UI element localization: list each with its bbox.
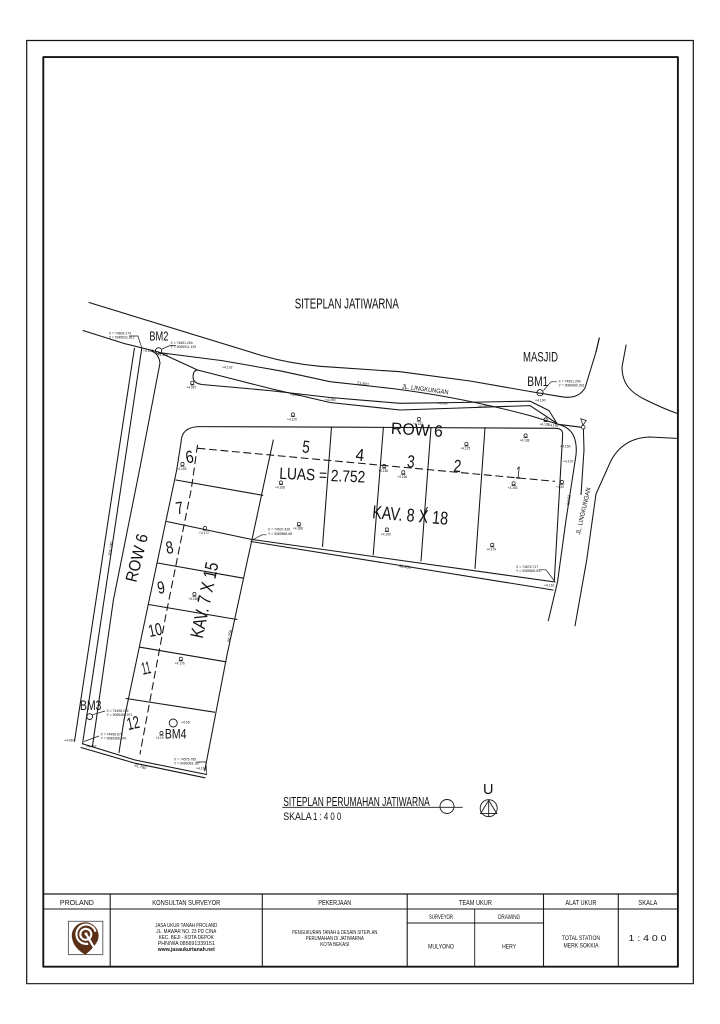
svg-text:+4.155: +4.155 bbox=[177, 467, 187, 471]
svg-text:U: U bbox=[483, 782, 493, 798]
svg-text:Y = 9089868.68: Y = 9089868.68 bbox=[268, 532, 292, 536]
svg-text:Y = 9089366.249: Y = 9089366.249 bbox=[101, 736, 127, 740]
svg-text:1: 1 bbox=[515, 462, 522, 482]
svg-text:JL. LINGKUNGAN: JL. LINGKUNGAN bbox=[401, 383, 449, 396]
svg-text:KOTA BEKASI: KOTA BEKASI bbox=[320, 942, 349, 948]
svg-text:+4.153: +4.153 bbox=[508, 486, 518, 490]
svg-text:+4.161: +4.161 bbox=[196, 767, 207, 771]
svg-text:10: 10 bbox=[146, 619, 164, 641]
svg-text:DRAWING: DRAWING bbox=[498, 915, 520, 921]
svg-text:62.02: 62.02 bbox=[565, 494, 571, 505]
svg-text:SURVEYOR: SURVEYOR bbox=[429, 915, 453, 921]
svg-text:TOTAL STATION: TOTAL STATION bbox=[562, 936, 600, 942]
svg-text:4: 4 bbox=[355, 445, 366, 466]
svg-text:45.201: 45.201 bbox=[399, 563, 413, 570]
svg-text:Y = 9089565.817: Y = 9089565.817 bbox=[516, 569, 542, 573]
svg-text:3: 3 bbox=[406, 451, 416, 472]
svg-text:1 : 4 0 0: 1 : 4 0 0 bbox=[313, 811, 341, 823]
svg-text:+4.467: +4.467 bbox=[64, 739, 75, 743]
svg-text:+4.19: +4.19 bbox=[156, 736, 164, 740]
svg-text:+4.504: +4.504 bbox=[143, 349, 154, 353]
svg-text:KONSULTAN SURVEYOR: KONSULTAN SURVEYOR bbox=[152, 900, 220, 907]
svg-text:+4.161: +4.161 bbox=[544, 584, 555, 588]
svg-text:MULYONO: MULYONO bbox=[428, 945, 454, 951]
svg-text:Y = 9089960.391: Y = 9089960.391 bbox=[559, 383, 585, 387]
svg-text:105.190: 105.190 bbox=[107, 540, 114, 556]
svg-text:+4.188: +4.188 bbox=[293, 527, 303, 531]
svg-text:+4.132: +4.132 bbox=[413, 422, 423, 426]
svg-text:+4.090: +4.090 bbox=[325, 398, 336, 402]
svg-text:+4.10: +4.10 bbox=[556, 485, 564, 489]
svg-text:+4.172: +4.172 bbox=[199, 531, 209, 535]
svg-text:+4.188: +4.188 bbox=[188, 597, 198, 601]
svg-text:+4.166: +4.166 bbox=[397, 475, 407, 479]
svg-text:www.jasaukurtanah.net: www.jasaukurtanah.net bbox=[157, 947, 215, 953]
svg-text:66.256: 66.256 bbox=[226, 629, 233, 643]
svg-text:2: 2 bbox=[453, 456, 463, 477]
svg-text:Y = 9089363.187: Y = 9089363.187 bbox=[174, 761, 200, 765]
svg-text:SKALA: SKALA bbox=[638, 900, 657, 907]
svg-text:+4.05: +4.05 bbox=[181, 721, 190, 725]
svg-text:+4.190: +4.190 bbox=[381, 532, 391, 536]
svg-text:+4.097: +4.097 bbox=[186, 386, 196, 390]
svg-text:Y = 9089465.971: Y = 9089465.971 bbox=[107, 713, 133, 717]
svg-text:LUAS = 2.752: LUAS = 2.752 bbox=[279, 465, 366, 487]
svg-text:+4.125: +4.125 bbox=[460, 447, 470, 451]
svg-text:+4.136: +4.136 bbox=[378, 469, 388, 473]
svg-text:KAV. 8 X 18: KAV. 8 X 18 bbox=[372, 501, 450, 529]
svg-text:Y = 9089911.129: Y = 9089911.129 bbox=[171, 345, 197, 349]
svg-text:+4.100: +4.100 bbox=[535, 399, 546, 403]
svg-text:BM2: BM2 bbox=[149, 328, 168, 343]
svg-text:MASJID: MASJID bbox=[523, 349, 558, 365]
svg-text:9: 9 bbox=[156, 577, 167, 598]
svg-text:+4.176: +4.176 bbox=[175, 662, 185, 666]
svg-text:+4.104: +4.104 bbox=[158, 353, 169, 357]
svg-text:41.760: 41.760 bbox=[134, 763, 148, 771]
svg-text:BM3: BM3 bbox=[80, 698, 101, 713]
svg-text:1 : 4 0 0: 1 : 4 0 0 bbox=[629, 934, 668, 943]
svg-text:HERY: HERY bbox=[502, 945, 516, 951]
svg-text:+4.120: +4.120 bbox=[287, 417, 297, 421]
svg-text:ROW 6: ROW 6 bbox=[123, 532, 152, 584]
svg-text:SKALA: SKALA bbox=[283, 811, 312, 823]
svg-text:TEAM UKUR: TEAM UKUR bbox=[459, 900, 492, 907]
svg-text:11: 11 bbox=[140, 657, 153, 678]
svg-text:+4.107: +4.107 bbox=[563, 460, 574, 464]
svg-text:5: 5 bbox=[301, 436, 311, 457]
svg-text:+4.093: +4.093 bbox=[437, 402, 448, 406]
svg-text:BM1: BM1 bbox=[527, 374, 548, 389]
svg-text:BM4: BM4 bbox=[165, 727, 187, 742]
svg-text:MERK SOKKIA: MERK SOKKIA bbox=[564, 944, 599, 950]
svg-text:PEKERJAAN: PEKERJAAN bbox=[318, 900, 351, 907]
svg-text:+4.095: +4.095 bbox=[290, 393, 301, 397]
svg-text:SITEPLAN PERUMAHAN JATIWARNA: SITEPLAN PERUMAHAN JATIWARNA bbox=[283, 794, 430, 809]
svg-text:JL. LINGKUNGAN: JL. LINGKUNGAN bbox=[575, 487, 593, 536]
svg-text:+4.150: +4.150 bbox=[560, 445, 571, 449]
svg-text:7: 7 bbox=[174, 497, 185, 518]
svg-text:SITEPLAN JATIWARNA: SITEPLAN JATIWARNA bbox=[295, 296, 399, 312]
svg-text:+4.102: +4.102 bbox=[222, 366, 233, 370]
svg-text:PROLAND: PROLAND bbox=[60, 900, 94, 907]
svg-text:Y = 9089911.812: Y = 9089911.812 bbox=[109, 335, 135, 339]
svg-text:+4.138: +4.138 bbox=[520, 438, 530, 442]
svg-text:+4.168: +4.168 bbox=[275, 485, 285, 489]
svg-text:+4.447: +4.447 bbox=[86, 745, 97, 749]
svg-text:6: 6 bbox=[184, 446, 195, 467]
svg-text:8: 8 bbox=[164, 537, 175, 558]
svg-text:+4.179: +4.179 bbox=[486, 548, 496, 552]
svg-text:+4.085: +4.085 bbox=[478, 405, 489, 409]
svg-text:73.801: 73.801 bbox=[357, 380, 371, 387]
svg-text:ALAT UKUR: ALAT UKUR bbox=[565, 900, 596, 907]
svg-text:+4.168: +4.168 bbox=[548, 424, 559, 428]
